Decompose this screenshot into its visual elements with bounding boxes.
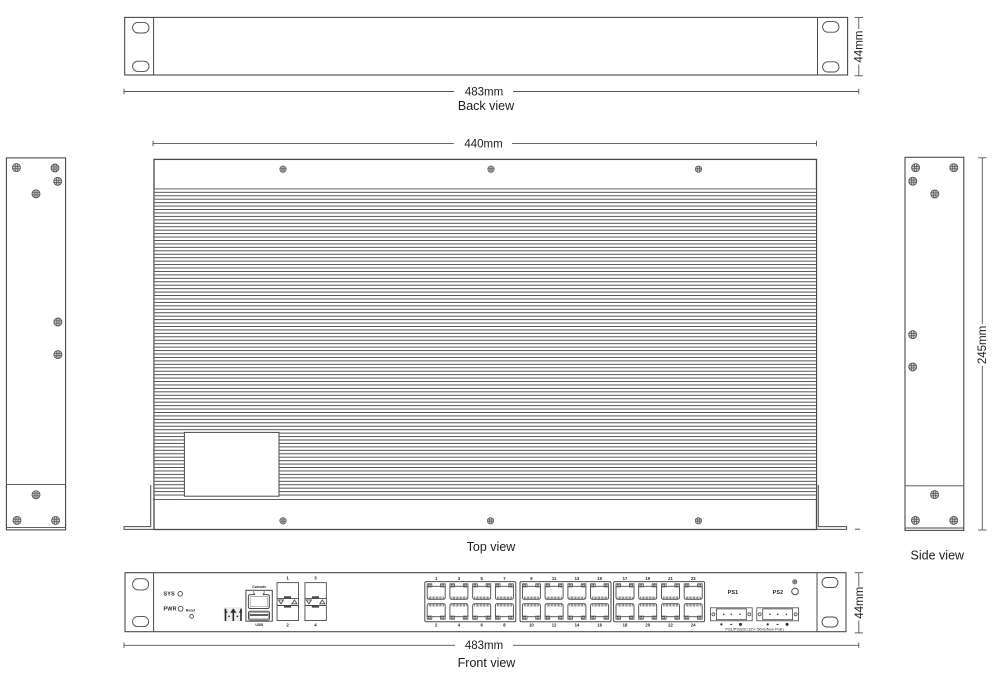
svg-text:PS2: PS2 (773, 590, 784, 596)
svg-text:Top view: Top view (467, 540, 517, 554)
svg-text:15: 15 (597, 576, 602, 581)
svg-text:11: 11 (552, 576, 557, 581)
svg-text:24: 24 (691, 622, 696, 627)
svg-text:22: 22 (668, 622, 673, 627)
svg-text:245mm: 245mm (977, 326, 989, 364)
svg-text:12: 12 (552, 622, 557, 627)
svg-text:PS1/PS2(DC12V~56V)(Non PoE): PS1/PS2(DC12V~56V)(Non PoE) (725, 627, 784, 632)
svg-text:18: 18 (623, 622, 628, 627)
svg-text:483mm: 483mm (465, 640, 503, 652)
svg-text:SYS: SYS (164, 592, 176, 598)
svg-text:17: 17 (623, 576, 628, 581)
svg-text:Console: Console (252, 585, 266, 589)
svg-text:16: 16 (597, 622, 602, 627)
svg-text:13: 13 (575, 576, 580, 581)
svg-text:44mm: 44mm (854, 587, 866, 619)
svg-text:Front view: Front view (458, 656, 517, 670)
svg-text:PS1: PS1 (728, 590, 739, 596)
svg-text:21: 21 (668, 576, 673, 581)
svg-text:Side view: Side view (911, 549, 965, 563)
svg-text:USB: USB (255, 623, 263, 627)
svg-text:483mm: 483mm (465, 86, 503, 98)
svg-text:44mm: 44mm (854, 31, 866, 63)
svg-text:440mm: 440mm (464, 138, 502, 150)
svg-text:14: 14 (575, 622, 580, 627)
svg-text:23: 23 (691, 576, 696, 581)
svg-text:Reset: Reset (186, 609, 196, 613)
svg-text:PWR: PWR (164, 607, 177, 613)
svg-text:19: 19 (645, 576, 650, 581)
svg-text:Back view: Back view (458, 99, 515, 113)
svg-text:20: 20 (645, 622, 650, 627)
svg-text:10: 10 (529, 622, 534, 627)
